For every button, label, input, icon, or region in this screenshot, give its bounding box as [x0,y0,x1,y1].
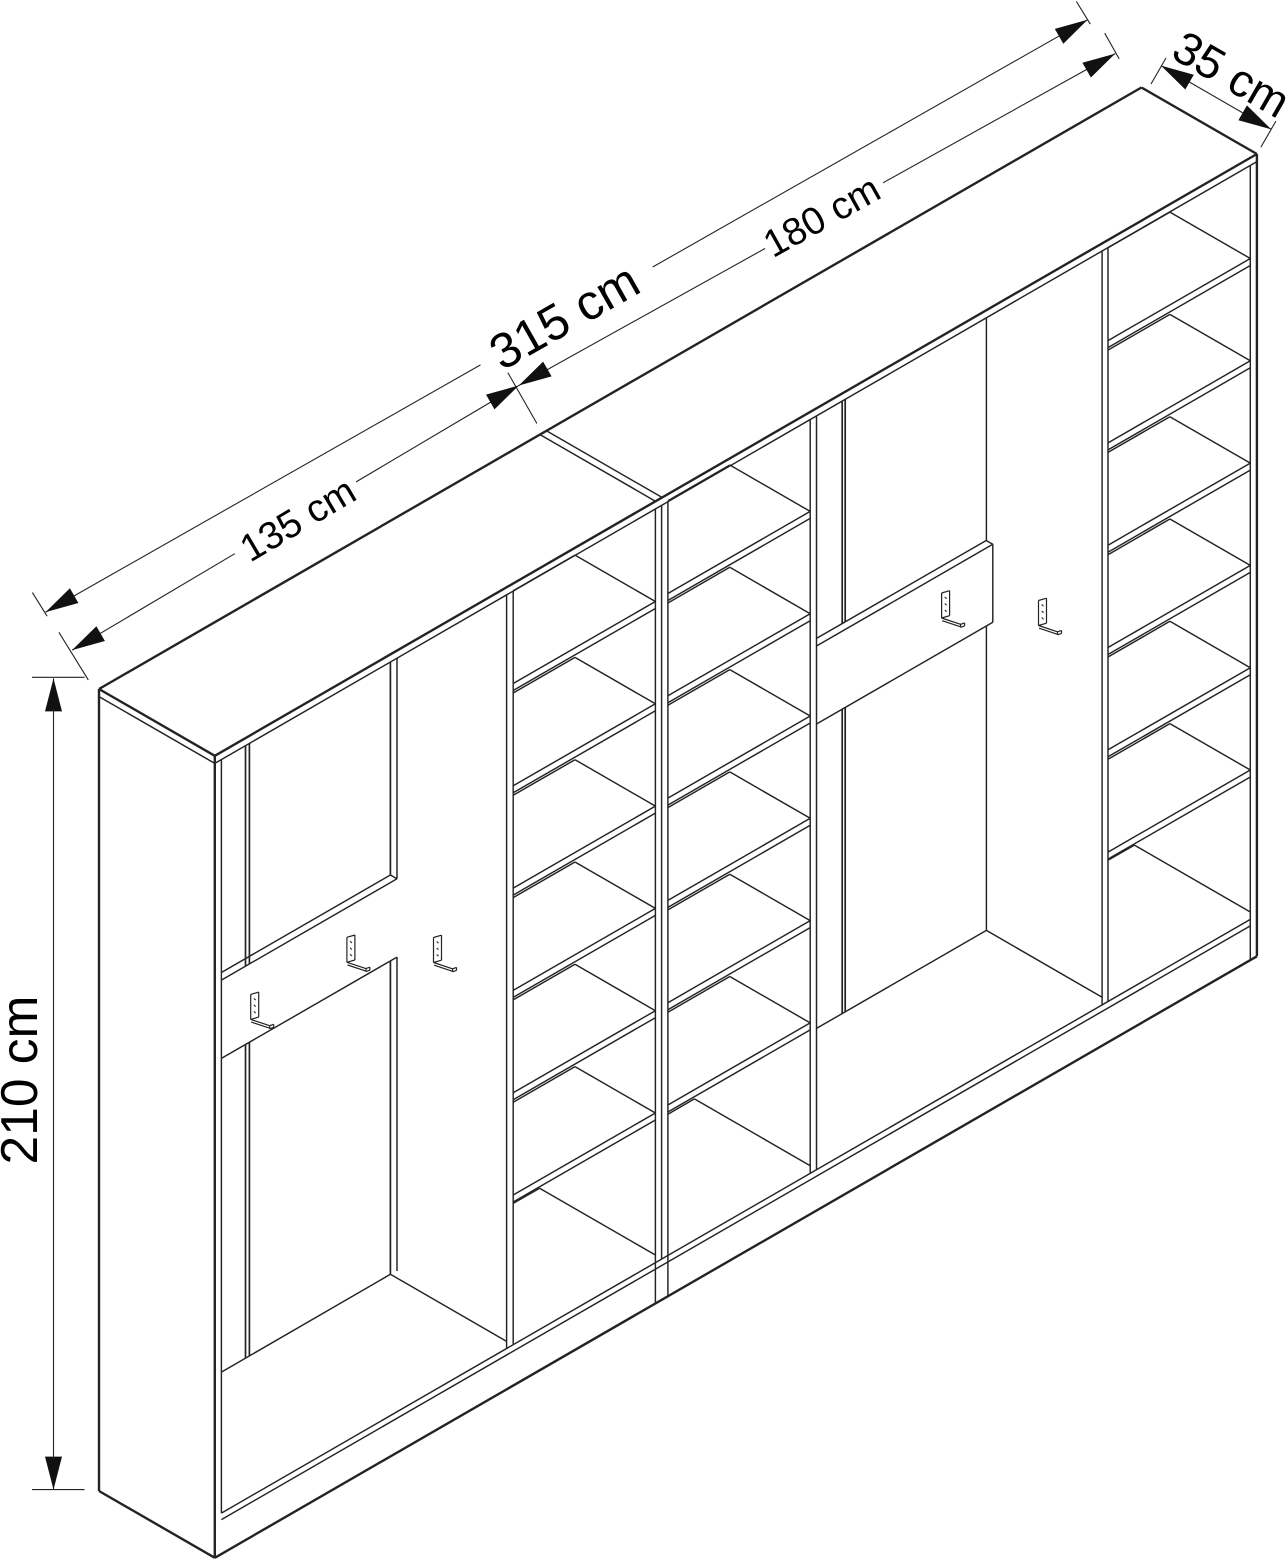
svg-text:210 cm: 210 cm [0,996,48,1165]
